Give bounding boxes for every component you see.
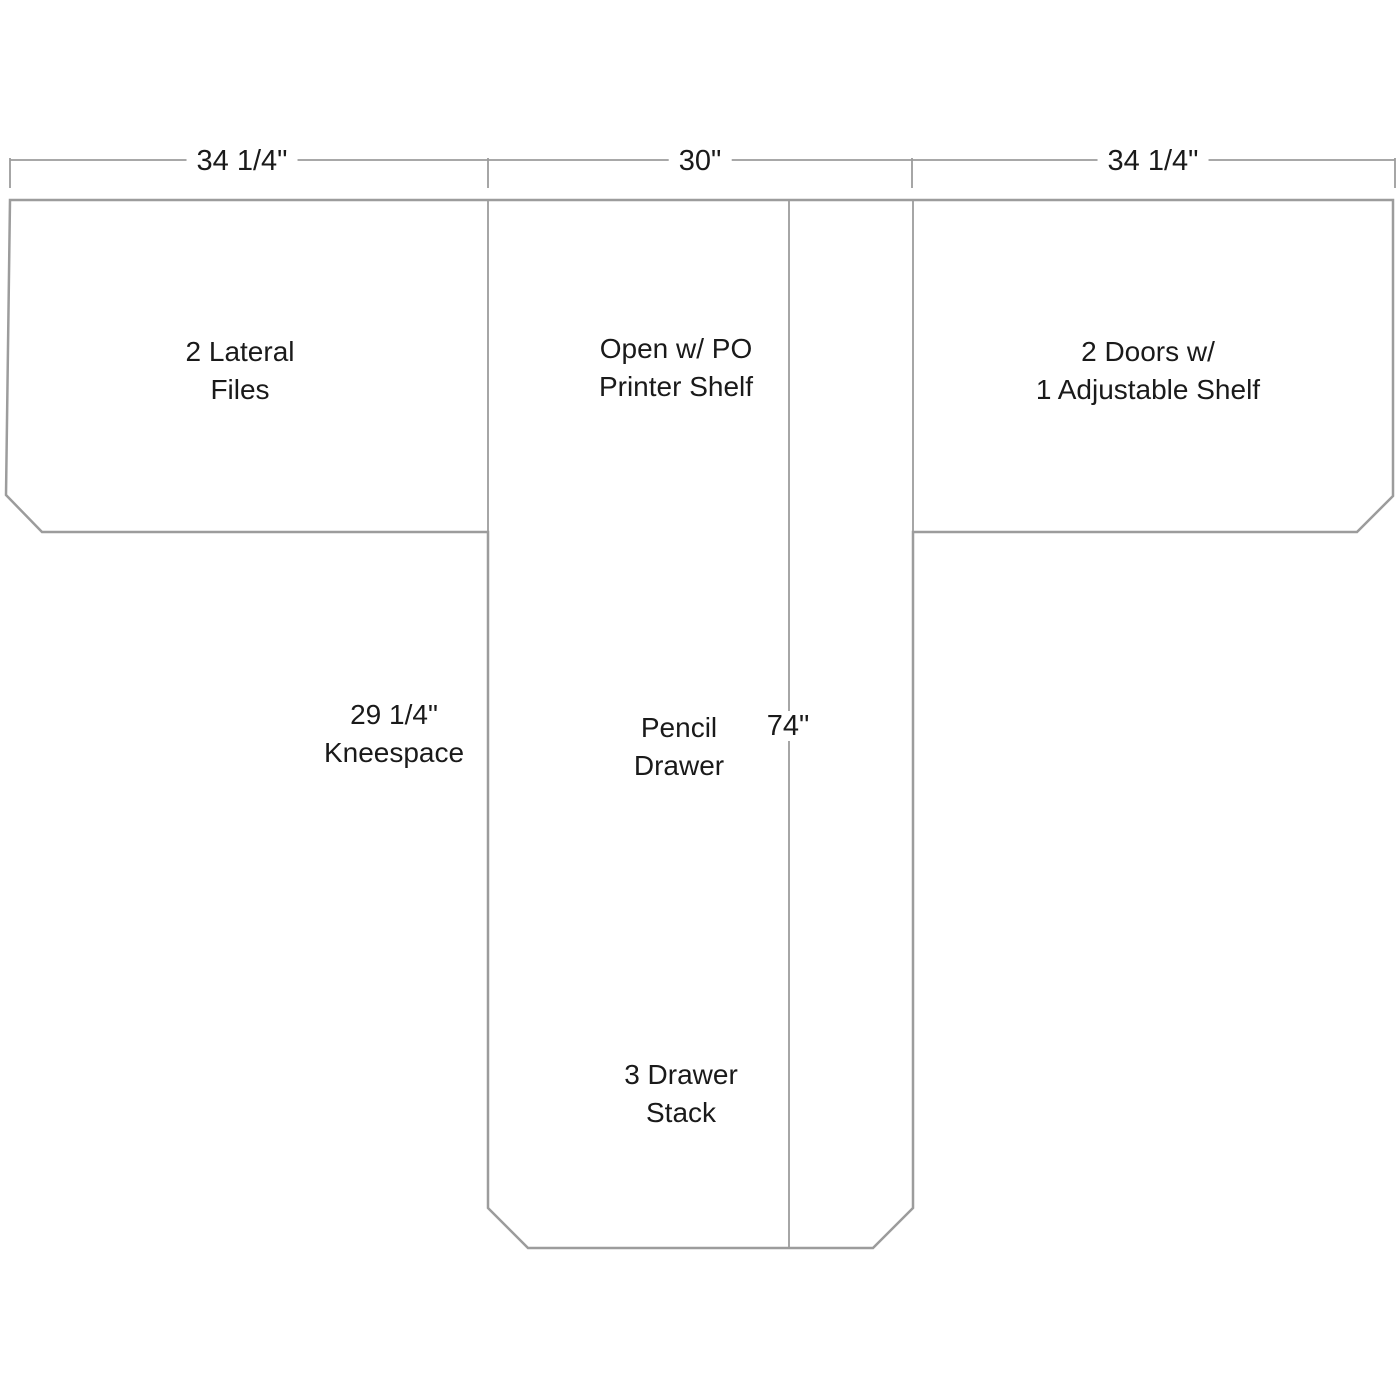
dimension-label-center-width: 30": [669, 146, 732, 176]
center-section-label-line2: Printer Shelf: [599, 368, 753, 406]
pencil-drawer-label-line1: Pencil: [634, 709, 724, 747]
dimension-label-left-width: 34 1/4": [187, 146, 298, 176]
dimension-label-right-width: 34 1/4": [1098, 146, 1209, 176]
drawer-stack-label-line2: Stack: [624, 1094, 738, 1132]
desk-plan-diagram: 34 1/4" 30" 34 1/4" 2 Lateral Files Open…: [0, 0, 1400, 1400]
center-section-label-line1: Open w/ PO: [599, 330, 753, 368]
desk-outline-drawing: [0, 0, 1400, 1400]
left-section-label-line2: Files: [186, 371, 295, 409]
left-section-label-line1: 2 Lateral: [186, 333, 295, 371]
drawer-stack-label: 3 Drawer Stack: [616, 1056, 746, 1132]
center-section-label: Open w/ PO Printer Shelf: [591, 330, 761, 406]
kneespace-label-line1: 29 1/4": [324, 696, 464, 734]
left-section-label: 2 Lateral Files: [178, 333, 303, 409]
right-section-label: 2 Doors w/ 1 Adjustable Shelf: [1028, 333, 1268, 409]
pencil-drawer-label-line2: Drawer: [634, 747, 724, 785]
drawer-stack-label-line1: 3 Drawer: [624, 1056, 738, 1094]
pencil-drawer-label: Pencil Drawer: [626, 709, 732, 785]
kneespace-label-line2: Kneespace: [324, 734, 464, 772]
kneespace-label: 29 1/4" Kneespace: [316, 696, 472, 772]
stem-dimension-label: 74": [757, 711, 820, 741]
right-section-label-line2: 1 Adjustable Shelf: [1036, 371, 1260, 409]
right-section-label-line1: 2 Doors w/: [1036, 333, 1260, 371]
